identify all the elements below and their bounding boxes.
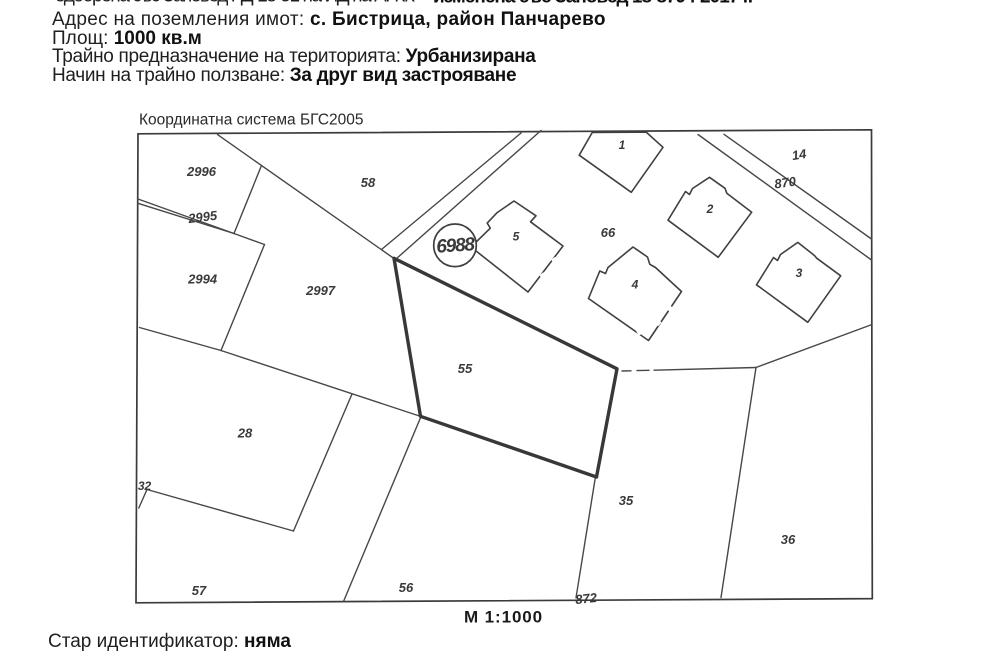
svg-text:5: 5 [513, 230, 520, 244]
svg-text:Координатна система БГС2005: Координатна система БГС2005 [139, 112, 364, 129]
svg-text:изменена със Заповед 18-8794-2: изменена със Заповед 18-8794-2017 г. [433, 0, 753, 8]
svg-text:58: 58 [361, 175, 376, 190]
svg-text:872: 872 [574, 590, 598, 607]
svg-text:870: 870 [773, 173, 797, 191]
svg-text:57: 57 [192, 583, 207, 598]
svg-text:2994: 2994 [187, 272, 218, 287]
svg-text:55: 55 [458, 361, 473, 376]
svg-text:2: 2 [706, 202, 714, 216]
svg-text:Начин на трайно ползване: За д: Начин на трайно ползване: За друг вид за… [52, 65, 516, 86]
svg-text:Адрес на поземления имот: с. Б: Адрес на поземления имот: с. Бистрица, р… [52, 9, 606, 30]
svg-text:35: 35 [619, 493, 634, 508]
svg-text:36: 36 [781, 532, 796, 547]
svg-text:одобрена със Заповед РД-18-51: одобрена със Заповед РД-18-51 на ИД на А… [55, 0, 415, 7]
svg-text:Стар идентификатор: няма: Стар идентификатор: няма [48, 631, 291, 652]
svg-text:3: 3 [796, 266, 803, 280]
svg-text:2996: 2996 [186, 164, 217, 179]
svg-text:6988: 6988 [436, 234, 476, 258]
svg-text:4: 4 [631, 278, 639, 292]
svg-text:32: 32 [138, 479, 152, 493]
svg-text:28: 28 [237, 426, 253, 441]
svg-text:56: 56 [399, 580, 414, 595]
svg-text:Трайно предназначение на терит: Трайно предназначение на територията: Ур… [52, 46, 536, 67]
svg-text:66: 66 [601, 225, 616, 240]
svg-text:2997: 2997 [305, 283, 336, 298]
svg-text:1: 1 [619, 138, 626, 152]
svg-text:М 1:1000: М 1:1000 [464, 608, 543, 627]
